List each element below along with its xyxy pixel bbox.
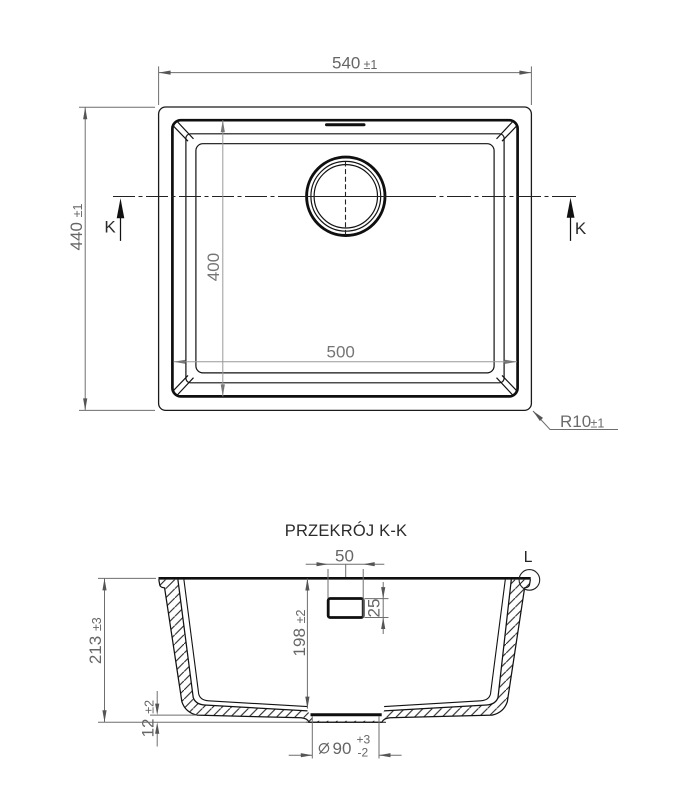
svg-text:K: K: [575, 219, 587, 238]
svg-text:+3: +3: [357, 733, 371, 747]
svg-text:R10: R10: [560, 412, 591, 431]
svg-text:400: 400: [204, 253, 223, 281]
svg-text:L: L: [524, 549, 533, 566]
svg-text:540: 540: [332, 54, 360, 73]
svg-text:500: 500: [327, 343, 355, 362]
svg-text:50: 50: [335, 547, 354, 566]
svg-text:90: 90: [333, 739, 352, 758]
svg-text:PRZEKRÓJ K-K: PRZEKRÓJ K-K: [285, 521, 408, 540]
svg-text:K: K: [104, 217, 116, 236]
svg-text:-2: -2: [358, 746, 369, 760]
svg-text:25: 25: [365, 599, 384, 618]
svg-text:±1: ±1: [591, 416, 605, 430]
svg-text:±1: ±1: [364, 58, 378, 72]
